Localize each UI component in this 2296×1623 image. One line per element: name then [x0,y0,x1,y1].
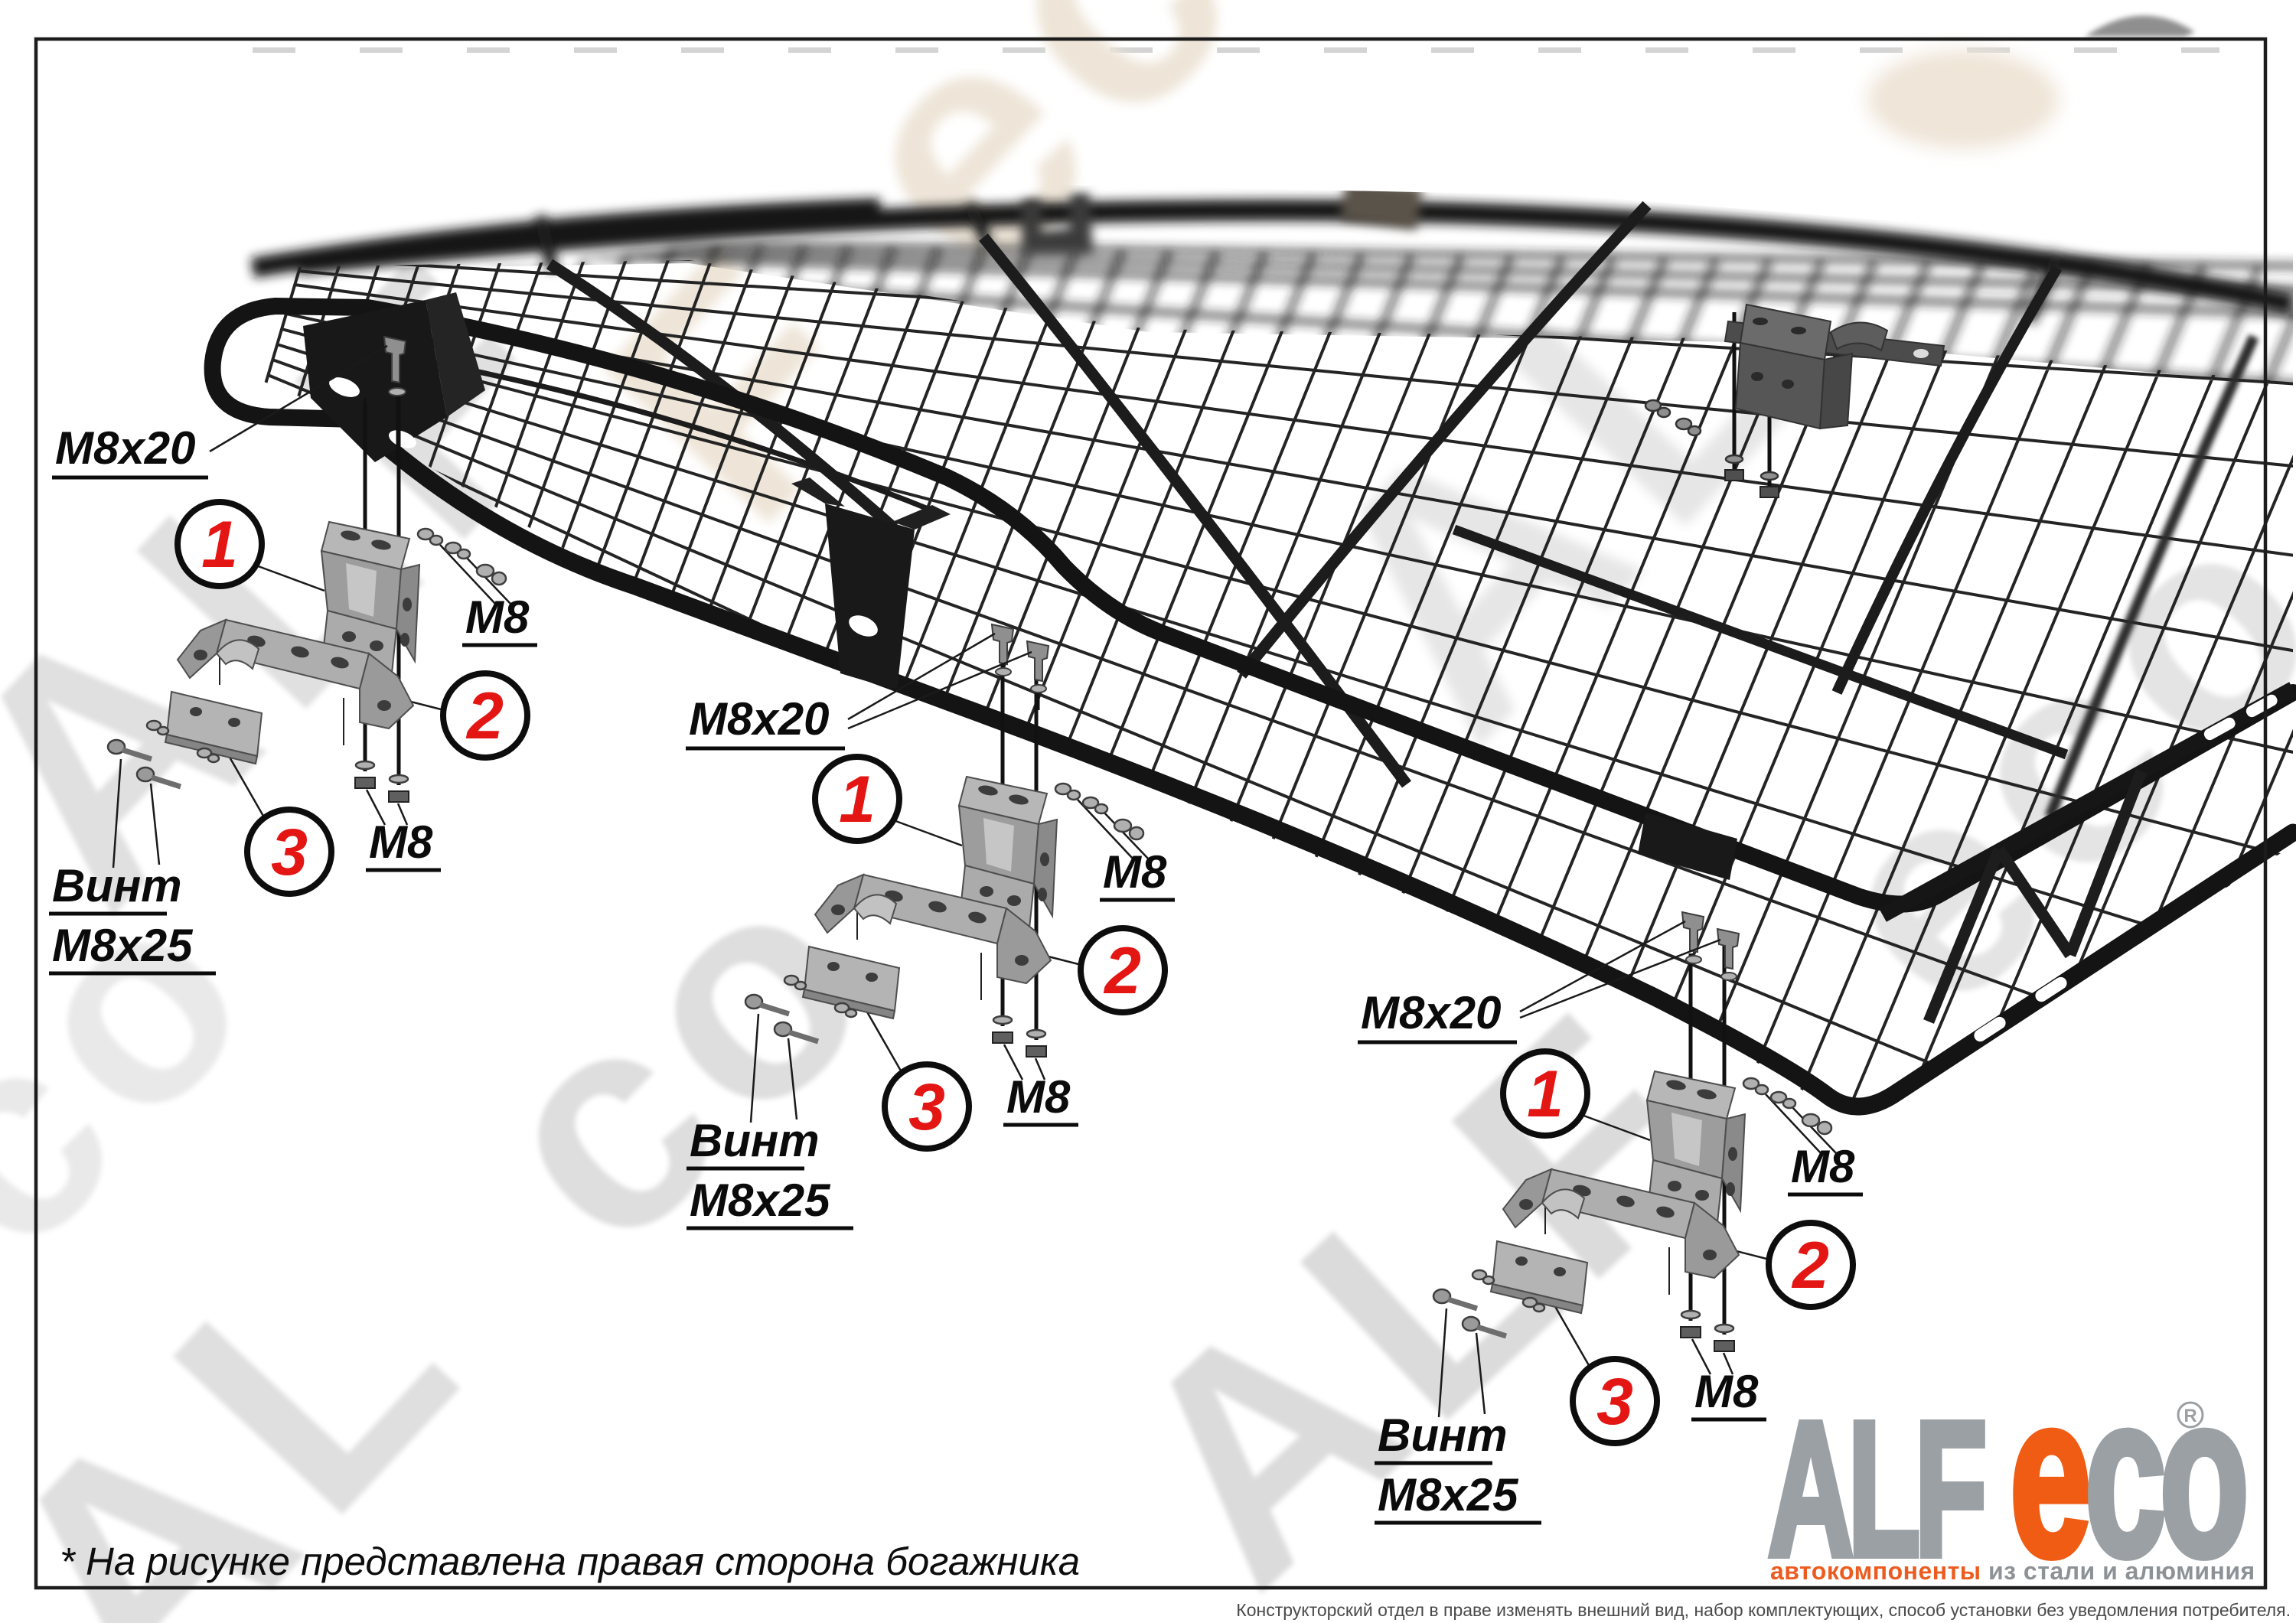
svg-text:M8x20: M8x20 [55,422,195,474]
svg-text:Конструкторский отдел в праве: Конструкторский отдел в праве изменять в… [1236,1600,2291,1620]
svg-text:Винт: Винт [52,860,182,911]
svg-text:1: 1 [201,508,238,582]
svg-text:M8x20: M8x20 [689,693,829,745]
svg-text:2: 2 [465,680,504,753]
svg-text:M8x20: M8x20 [1361,987,1501,1038]
svg-text:3: 3 [271,816,308,889]
svg-text:M8: M8 [465,592,530,643]
svg-text:* На рисунке представлена прав: * На рисунке представлена правая сторона… [60,1540,1080,1583]
svg-text:M8: M8 [369,816,433,868]
svg-text:автокомпоненты из стали и алюм: автокомпоненты из стали и алюминия [1770,1557,2255,1585]
svg-text:М8х25: М8х25 [52,920,194,971]
svg-text:R: R [2183,1406,2197,1426]
